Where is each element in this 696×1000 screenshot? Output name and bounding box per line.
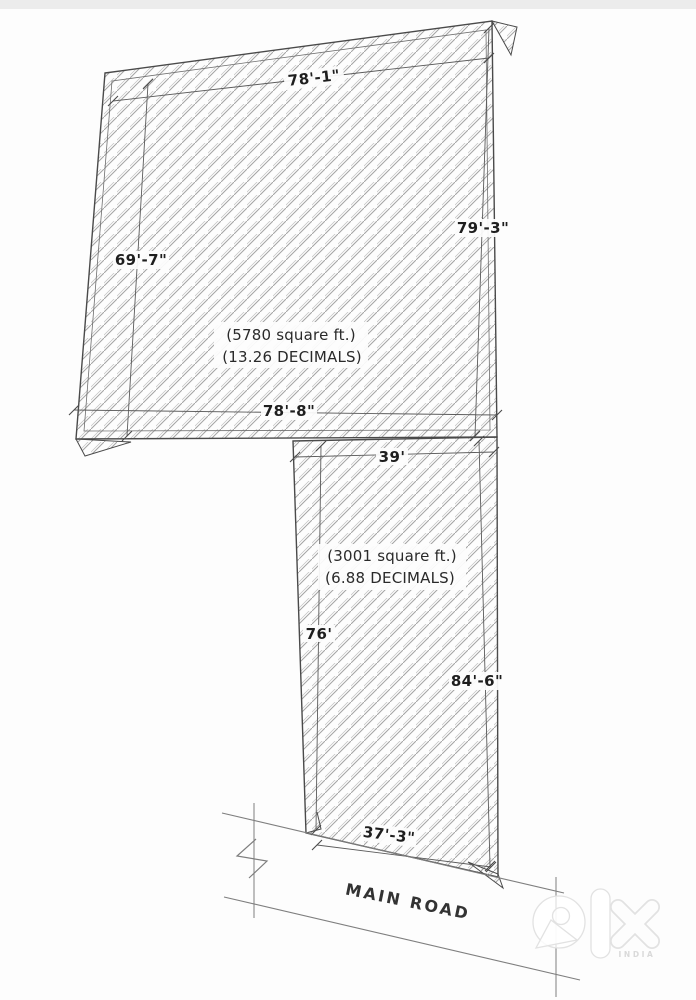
lower-plot-decimals-label: (6.88 DECIMALS) (325, 569, 455, 587)
dim-bottom-upper: 78'-8" (261, 402, 317, 420)
site-plan-screenshot: 78'-1" 69'-7" 79'-3" 78'-8" (5780 square… (0, 0, 696, 1000)
upper-plot-area-text: (5780 square ft.) (13.26 DECIMALS) (214, 322, 368, 368)
olx-logo-icon: INDIA (533, 889, 655, 959)
upper-plot-left-dimension: 69'-7" (115, 251, 167, 269)
upper-plot-right-dimension: 79'-3" (457, 219, 509, 237)
upper-plot-area-label: (5780 square ft.) (226, 326, 356, 344)
main-road-label: MAIN ROAD (344, 880, 472, 924)
top-border-band (0, 0, 696, 9)
dim-top-lower: 39' (376, 448, 408, 466)
upper-plot-bottom-left-corner-flap (76, 439, 131, 456)
olx-l-bar (591, 889, 610, 958)
dim-left-lower: 76' (303, 625, 335, 643)
olx-india-text: INDIA (619, 950, 656, 959)
lower-plot-area-label: (3001 square ft.) (327, 547, 457, 565)
site-plan-drawing: 78'-1" 69'-7" 79'-3" 78'-8" (5780 square… (0, 0, 696, 1000)
lower-plot-right-dimension: 84'-6" (451, 672, 503, 690)
dim-left-upper: 69'-7" (113, 251, 169, 269)
upper-plot-top-right-corner-flap (492, 21, 517, 55)
olx-o-inner-circle (553, 908, 570, 925)
road-break-zigzag-icon (237, 839, 267, 878)
dim-right-upper: 79'-3" (455, 219, 511, 237)
dim-right-lower: 84'-6" (449, 672, 505, 690)
upper-plot-decimals-label: (13.26 DECIMALS) (222, 348, 362, 366)
lower-plot-left-dimension: 76' (306, 625, 333, 643)
olx-x-fill (618, 907, 652, 941)
upper-plot-bottom-dimension: 78'-8" (263, 402, 315, 420)
lower-plot-top-dimension: 39' (379, 448, 406, 466)
main-road-label-group: MAIN ROAD (344, 880, 472, 924)
lower-plot-boundary (293, 437, 498, 877)
lower-plot-area-text: (3001 square ft.) (6.88 DECIMALS) (318, 544, 466, 590)
